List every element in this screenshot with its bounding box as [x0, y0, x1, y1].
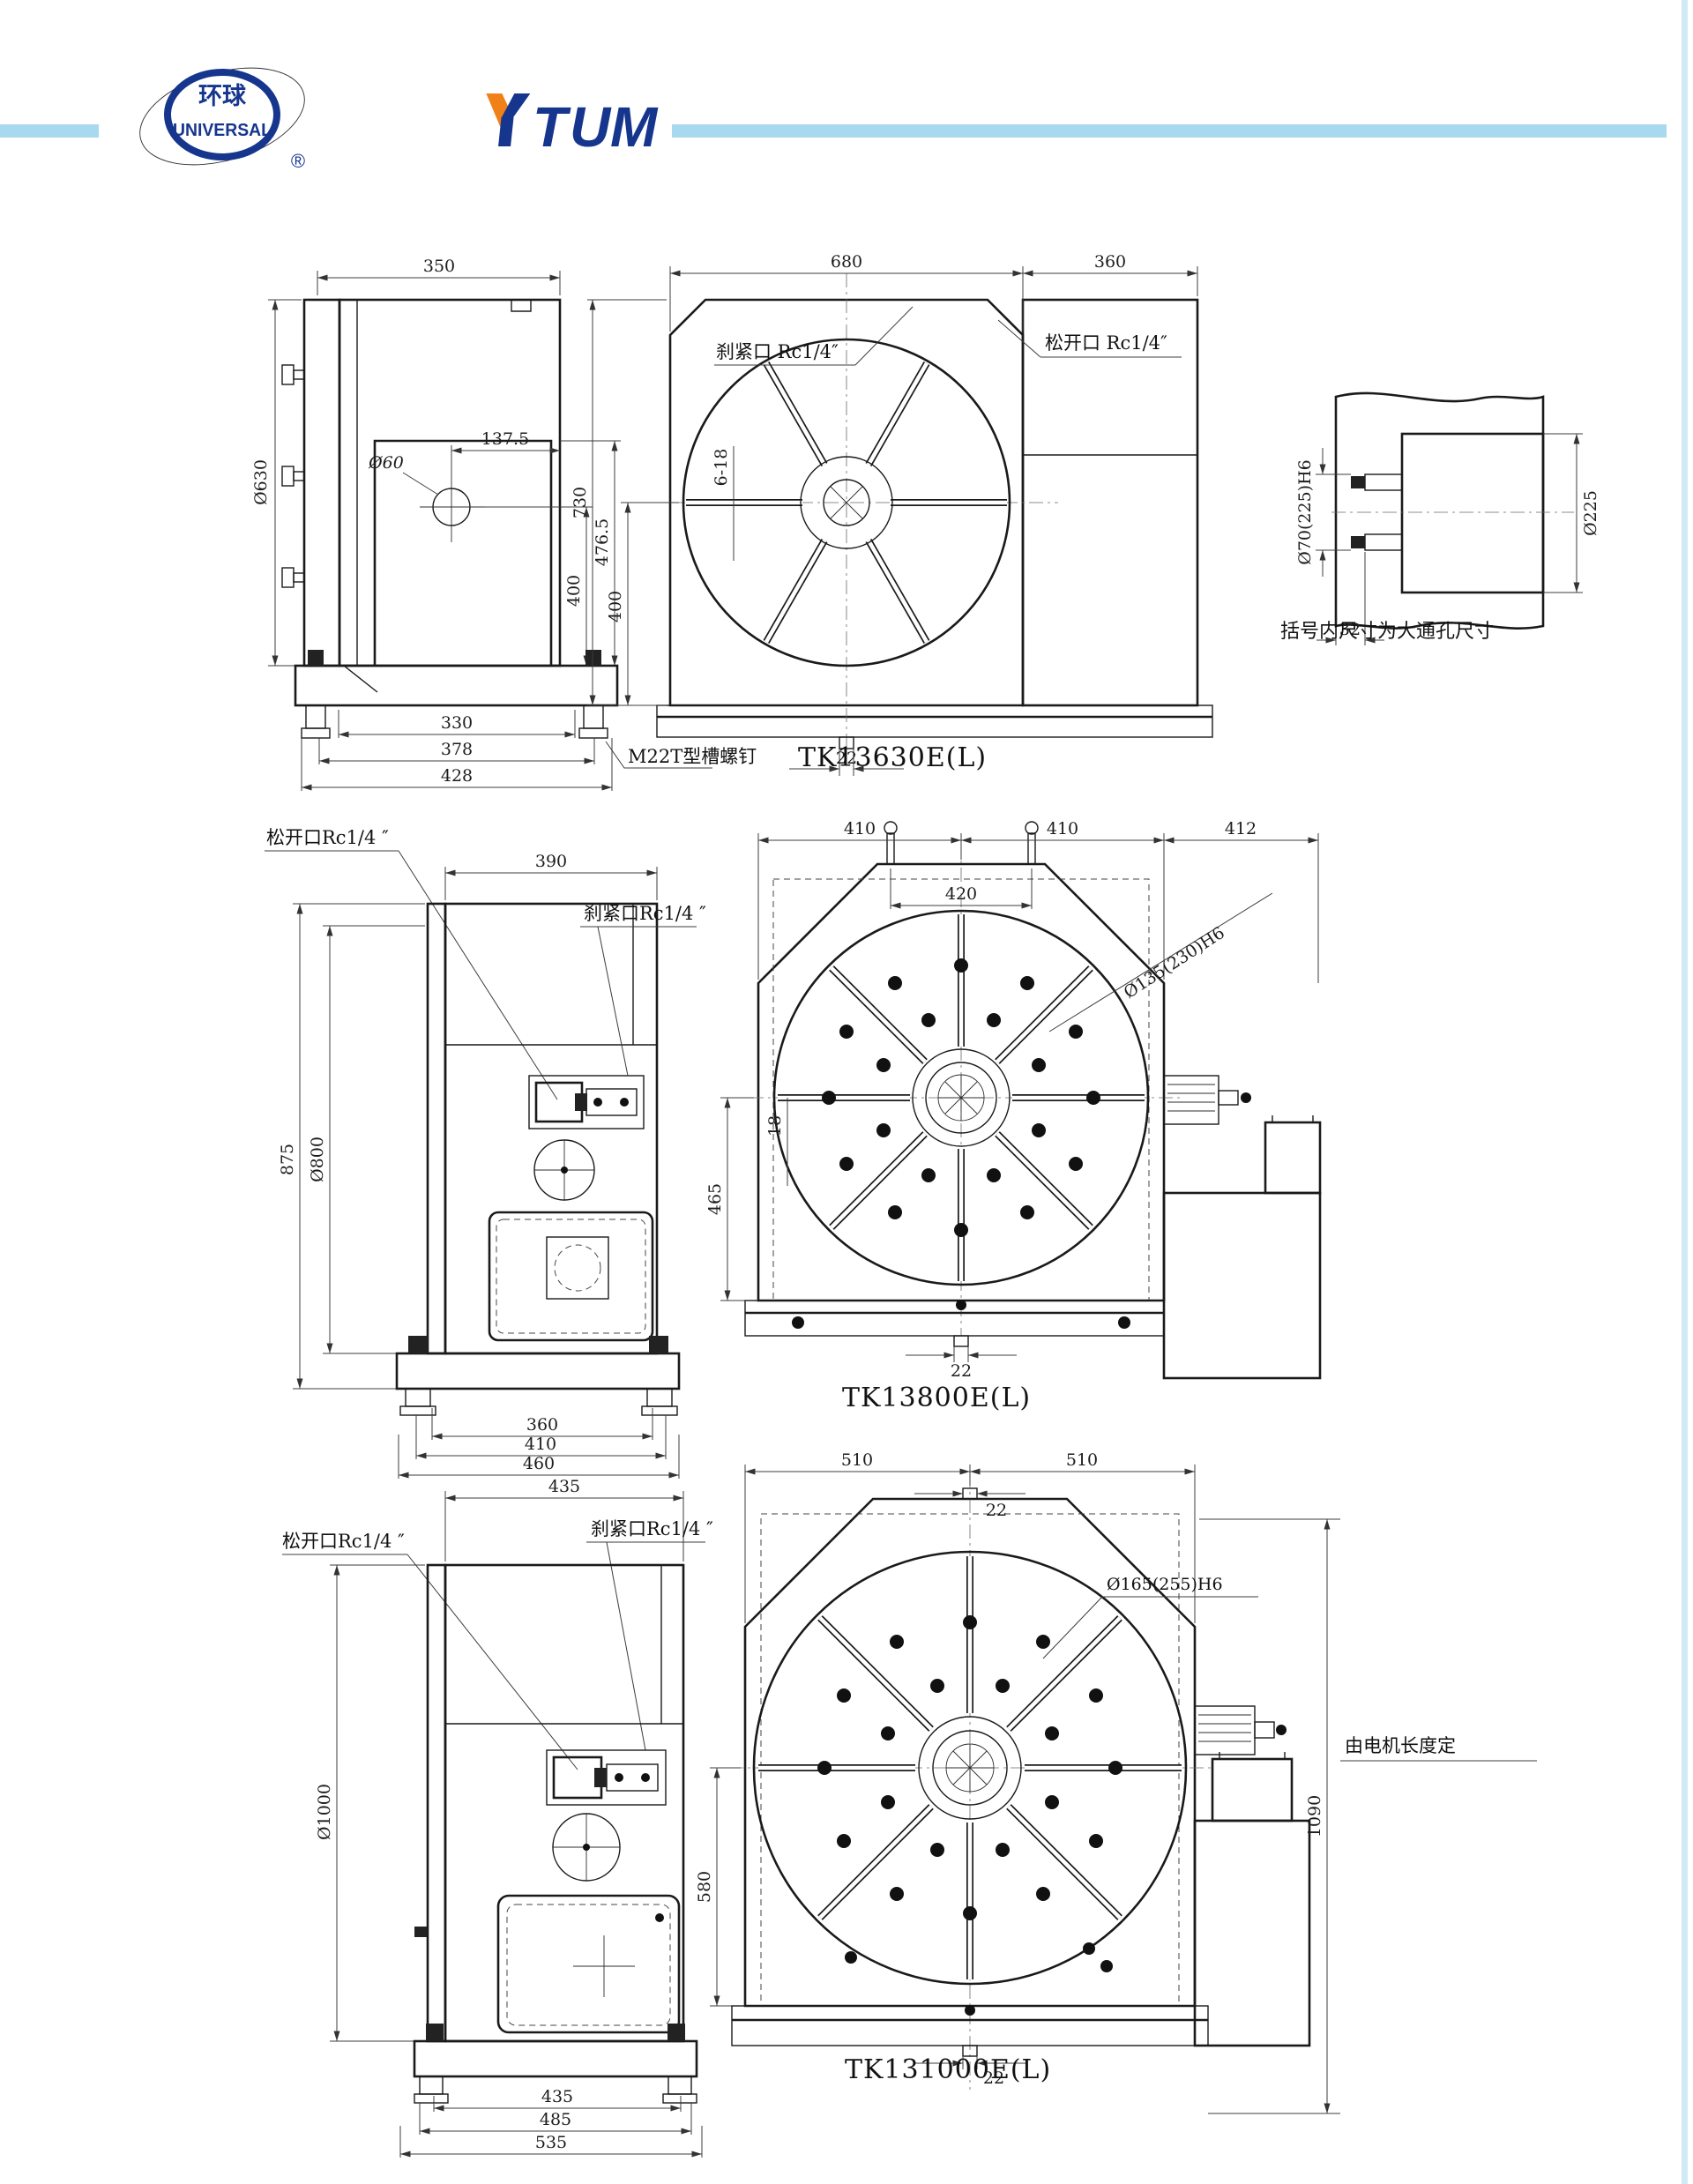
callout-18: 18 [765, 1098, 787, 1186]
svg-text:428: 428 [441, 766, 473, 786]
svg-text:435: 435 [548, 1477, 580, 1496]
tk131000-plan-view-drawing: 510 510 22 [692, 1442, 1539, 2160]
logo-chinese-text: 环球 [198, 83, 247, 110]
svg-text:510: 510 [1066, 1450, 1098, 1470]
ytum-letter-t: T [533, 95, 571, 159]
dim-800: Ø800 [308, 926, 425, 1353]
dim-390: 390 [445, 852, 657, 900]
svg-text:22: 22 [951, 1361, 972, 1381]
callout-bore: Ø135(230)H6 [1049, 893, 1272, 1032]
side-port [414, 1927, 427, 1937]
svg-text:松开口Rc1/4 ″: 松开口Rc1/4 ″ [282, 1531, 405, 1552]
svg-text:330: 330 [441, 713, 473, 733]
base-flange [397, 1336, 679, 1415]
dim-435-bottom: 435 [434, 2087, 681, 2112]
dim-465: 465 [705, 1098, 754, 1301]
registered-mark-icon: ® [291, 150, 305, 172]
svg-text:400: 400 [606, 591, 625, 622]
dim-1090: 1090 [1199, 1519, 1340, 2113]
dim-350: 350 [317, 257, 560, 295]
label-clamp-port: 刹紧口Rc1/4 ″ [580, 903, 706, 1076]
page-edge-accent [1682, 0, 1688, 2184]
svg-text:由电机长度定: 由电机长度定 [1345, 1735, 1456, 1756]
ytum-letter-u: U [570, 95, 612, 159]
svg-text:Ø800: Ø800 [308, 1137, 327, 1182]
dim-400-plan: 400 [606, 503, 679, 705]
callout-bore: Ø165(255)H6 [1043, 1575, 1258, 1658]
svg-text:松开口 Rc1/4″: 松开口 Rc1/4″ [1045, 332, 1167, 354]
svg-text:Ø70(225)H6: Ø70(225)H6 [1295, 459, 1315, 565]
svg-text:Ø135(230)H6: Ø135(230)H6 [1121, 923, 1228, 1003]
label-clamp-port: 刹紧口 Rc1/4″ [714, 307, 913, 365]
svg-text:390: 390 [535, 852, 567, 871]
svg-text:Ø1000: Ø1000 [315, 1784, 334, 1840]
dim-378: 378 [319, 738, 594, 764]
svg-text:730: 730 [571, 487, 590, 518]
door-panel [498, 1896, 679, 2032]
model-title-tk131000: TK131000E(L) [845, 2054, 1051, 2085]
inner-housing [375, 441, 551, 666]
dim-410-right: 410 [961, 819, 1164, 980]
dim-485: 485 [420, 2103, 691, 2135]
ytum-wordmark: T U M [483, 88, 660, 159]
back-plate [428, 904, 445, 1353]
svg-text:Ø225: Ø225 [1581, 490, 1600, 536]
actuator-block [1164, 1076, 1251, 1124]
actuator-block [1195, 1706, 1287, 1755]
svg-text:410: 410 [525, 1435, 556, 1454]
universal-globe-logo: 环球 UNIVERSAL ® [132, 46, 344, 196]
svg-text:420: 420 [945, 884, 977, 904]
svg-text:412: 412 [1225, 819, 1257, 839]
parenthesis-note: 括号内尺寸为大通孔尺寸 [1280, 615, 1494, 644]
ytum-letter-y [481, 93, 530, 146]
clamp-valve-block [547, 1750, 666, 1805]
tk131000-side-view-drawing: 435 松开口Rc1/4 ″ 刹紧口Rc1/4 ″ [282, 1459, 705, 2165]
dim-535: 535 [400, 2126, 702, 2158]
svg-text:Ø630: Ø630 [251, 459, 271, 505]
dim-510-left: 510 [745, 1450, 970, 1623]
ytum-letter-m: M [610, 95, 659, 159]
svg-text:435: 435 [541, 2087, 573, 2106]
tk13630-bore-detail-drawing: Ø70(225)H6 Ø225 32 [1252, 370, 1622, 652]
header-accent-bar-left [0, 124, 99, 138]
dim-360: 360 [1023, 252, 1197, 296]
back-plate [428, 1565, 445, 2041]
handwheel [553, 1814, 620, 1881]
svg-text:22: 22 [986, 1501, 1007, 1520]
svg-text:刹紧口 Rc1/4″: 刹紧口 Rc1/4″ [716, 341, 839, 362]
top-notch [511, 300, 531, 311]
svg-text:410: 410 [844, 819, 876, 839]
t-slot-studs [282, 365, 304, 587]
svg-text:410: 410 [1047, 819, 1078, 839]
dim-875: 875 [278, 904, 425, 1389]
svg-text:360: 360 [1094, 252, 1126, 272]
svg-text:350: 350 [423, 257, 455, 276]
svg-text:378: 378 [441, 740, 473, 759]
back-plate [304, 300, 339, 666]
base-strip [745, 1300, 1164, 1336]
tk13800-side-view-drawing: 松开口Rc1/4 ″ 390 875 Ø800 [265, 824, 697, 1481]
model-title-tk13800: TK13800E(L) [842, 1383, 1031, 1413]
svg-text:360: 360 [526, 1415, 558, 1435]
base-strip [657, 705, 1212, 737]
label-release-port: 松开口Rc1/4 ″ [265, 827, 557, 1099]
label-release-port: 松开口Rc1/4 ″ [282, 1531, 578, 1770]
motor-box [1195, 1752, 1309, 2046]
tk13630-plan-view-drawing: 680 360 730 400 6-18 刹紧口 Rc1/4″ [564, 236, 1261, 801]
machine-body [445, 1565, 683, 2041]
svg-text:Ø165(255)H6: Ø165(255)H6 [1107, 1575, 1223, 1594]
svg-text:松开口Rc1/4 ″: 松开口Rc1/4 ″ [266, 827, 389, 848]
motor-box [1164, 1115, 1320, 1378]
dim-hole-dia: Ø60 [368, 453, 404, 473]
machine-body [339, 300, 560, 666]
dim-1000: Ø1000 [315, 1565, 425, 2041]
svg-text:465: 465 [705, 1183, 725, 1215]
dim-580: 580 [695, 1768, 741, 2006]
key-stub-22: 22 [906, 1336, 1017, 1381]
svg-text:535: 535 [535, 2133, 567, 2152]
svg-text:刹紧口Rc1/4 ″: 刹紧口Rc1/4 ″ [584, 903, 706, 924]
dim-410-left: 410 [758, 819, 961, 980]
svg-text:485: 485 [540, 2110, 571, 2129]
handwheel [534, 1140, 594, 1200]
svg-text:18: 18 [765, 1115, 785, 1137]
header-accent-bar-right [672, 124, 1667, 138]
dim-137-5: 137.5 [451, 429, 560, 473]
label-release-port: 松开口 Rc1/4″ [998, 320, 1182, 357]
catalog-page: 环球 UNIVERSAL ® T U M [0, 0, 1693, 2184]
svg-text:510: 510 [841, 1450, 873, 1470]
tk13800-plan-view-drawing: 420 410 410 412 [701, 807, 1323, 1428]
dim-330: 330 [339, 710, 575, 738]
dim-510-right: 510 [970, 1450, 1195, 1623]
clamp-valve-block [529, 1076, 644, 1129]
svg-text:680: 680 [831, 252, 862, 272]
bore-cavity [1402, 434, 1543, 593]
svg-text:875: 875 [278, 1144, 297, 1175]
svg-text:1090: 1090 [1305, 1795, 1324, 1837]
svg-text:6-18: 6-18 [712, 449, 731, 487]
logo-universal-text: UNIVERSAL [173, 121, 272, 140]
label-motor-length: 由电机长度定 [1340, 1735, 1537, 1761]
model-title-tk13630: TK13630E(L) [798, 742, 987, 773]
svg-text:137.5: 137.5 [481, 429, 529, 449]
door-panel [489, 1212, 653, 1340]
dim-outer-225: Ø225 [1543, 434, 1600, 593]
svg-text:580: 580 [695, 1871, 714, 1903]
